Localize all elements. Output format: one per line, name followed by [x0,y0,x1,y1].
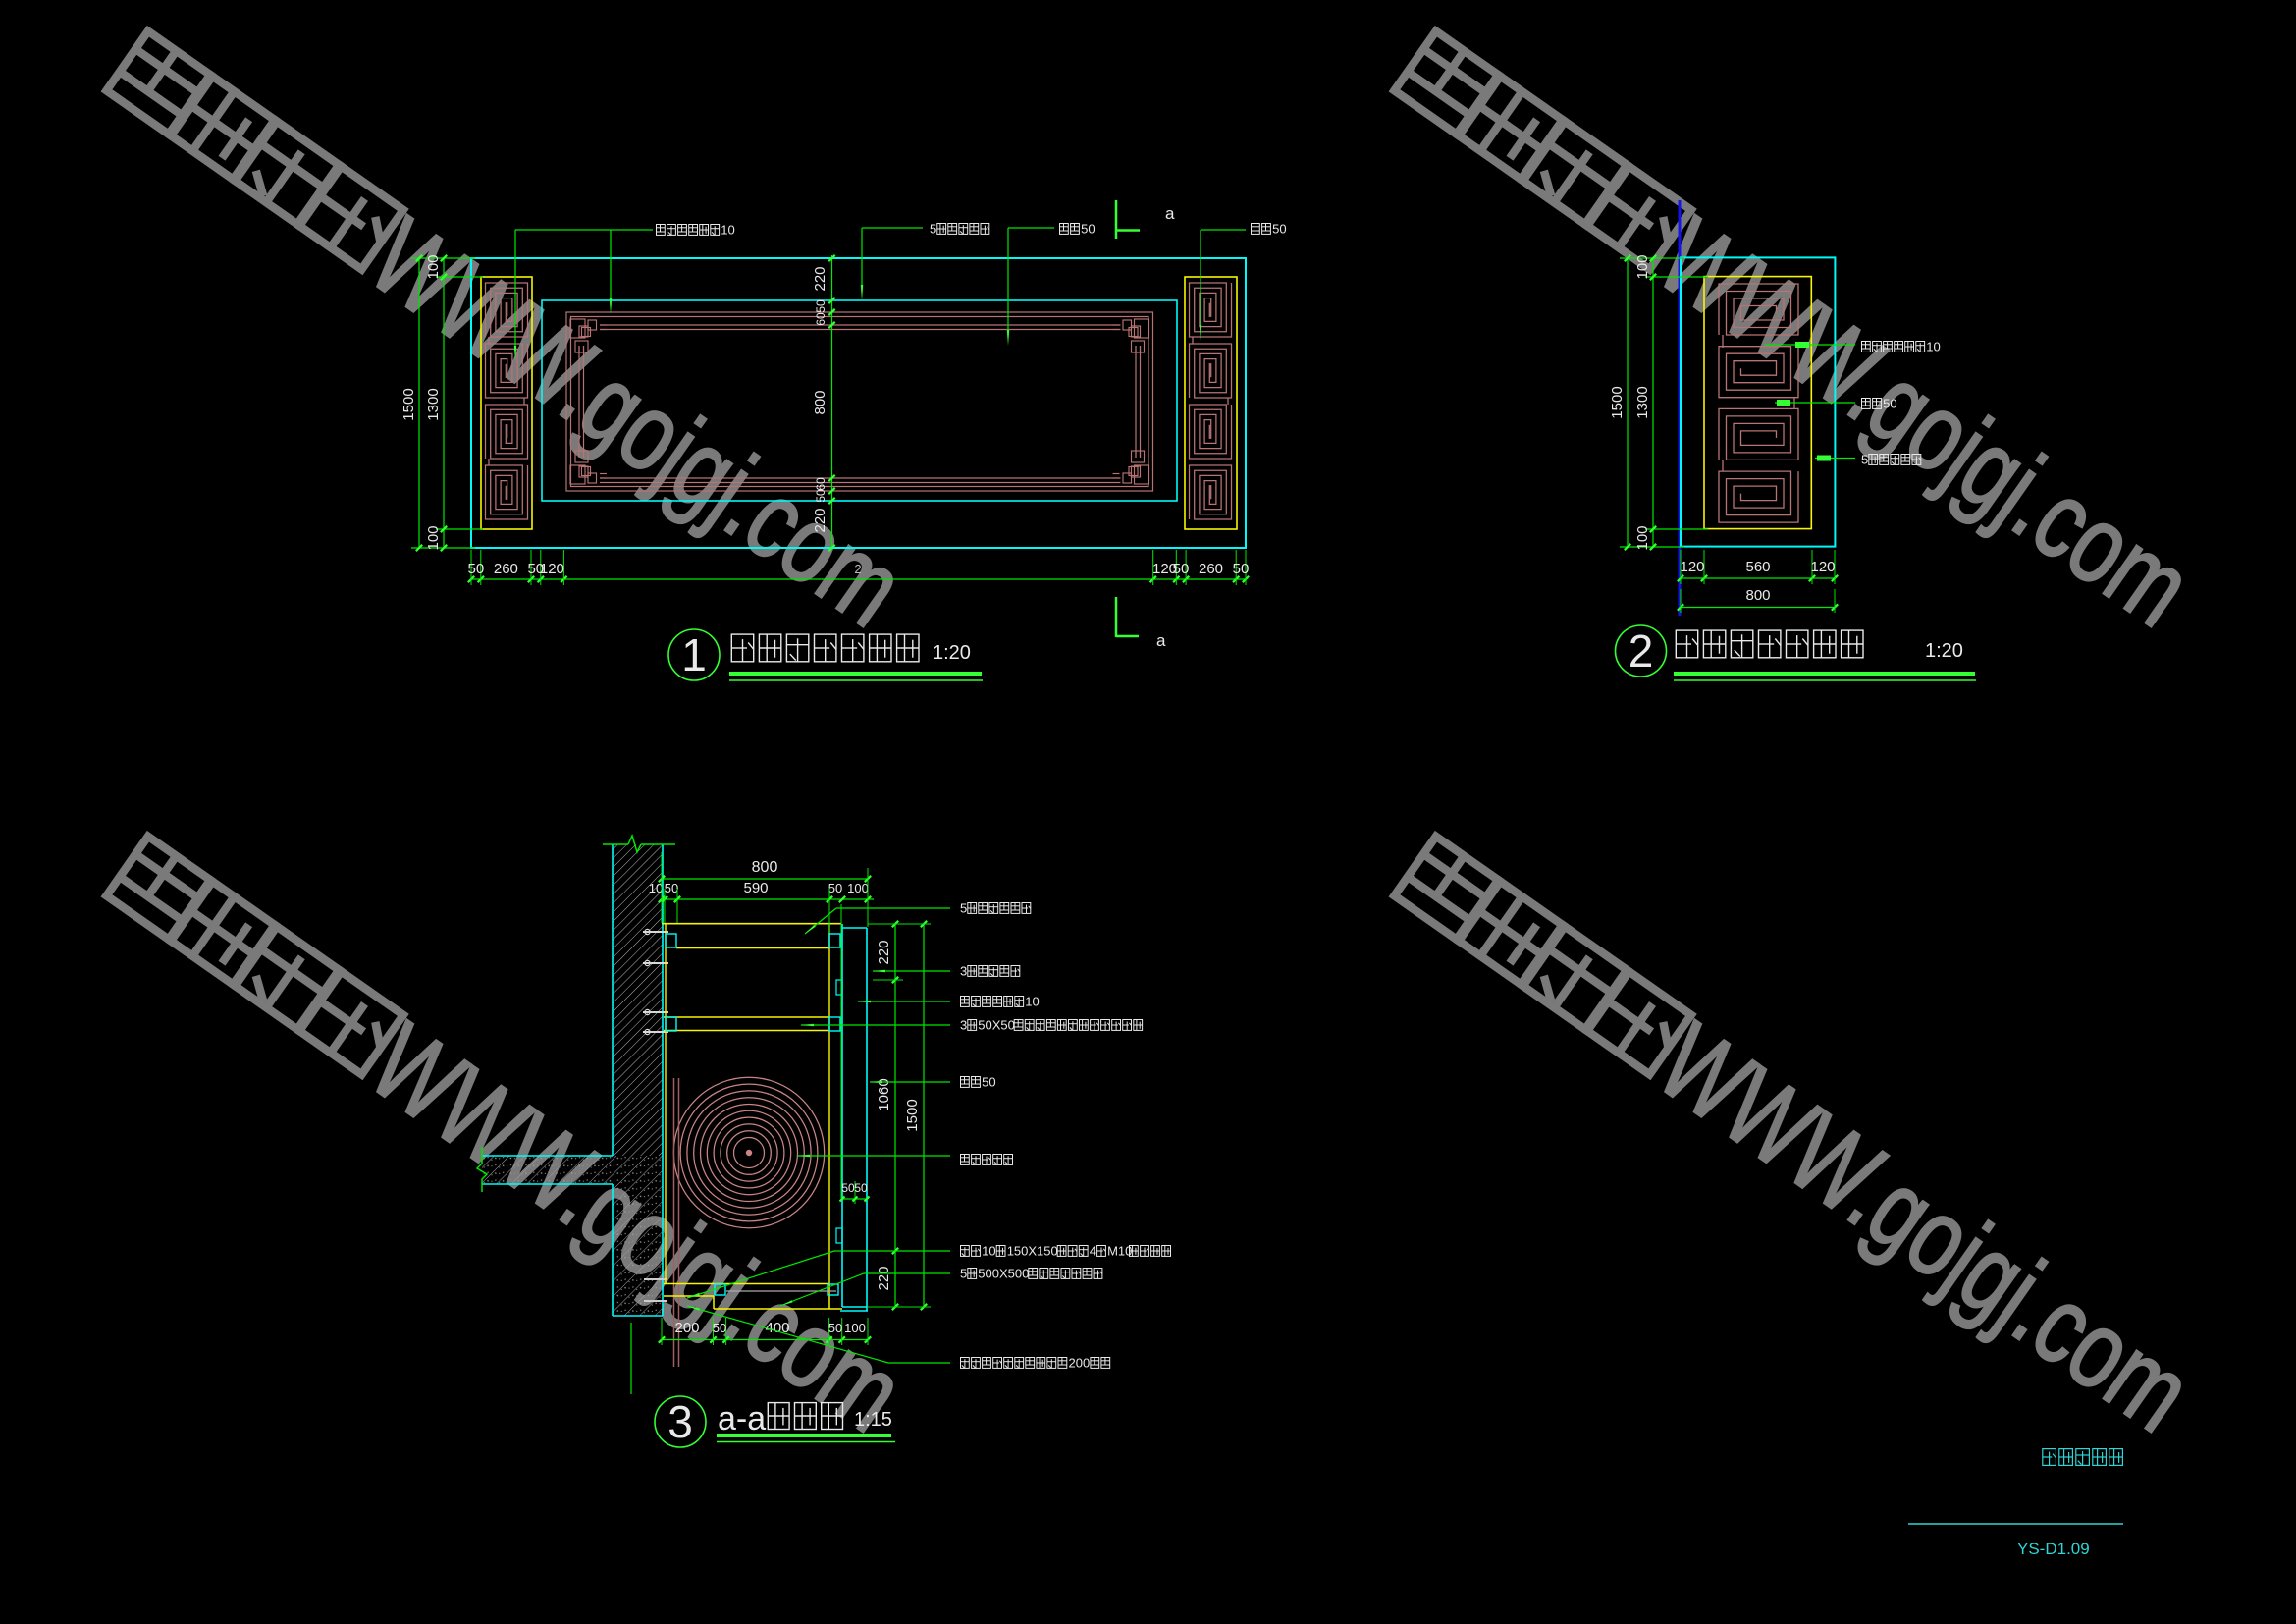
svg-text:100: 100 [844,1321,866,1335]
svg-text:50: 50 [468,561,485,577]
svg-text:10: 10 [982,1244,995,1259]
svg-text:3: 3 [667,1396,693,1447]
svg-text:1: 1 [681,629,707,680]
svg-text:50: 50 [1883,397,1896,411]
svg-text:800: 800 [1745,587,1770,604]
svg-text:1:15: 1:15 [854,1409,892,1431]
svg-text:1500: 1500 [904,1099,921,1131]
svg-text:50: 50 [665,881,678,895]
svg-text:50: 50 [1272,222,1286,237]
svg-text:a: a [1165,204,1175,223]
svg-text:120: 120 [1810,559,1835,575]
svg-text:50X50: 50X50 [978,1018,1015,1033]
svg-text:100: 100 [425,525,442,550]
svg-text:50: 50 [982,1075,995,1090]
svg-text:120: 120 [540,561,564,577]
svg-text:10: 10 [1025,995,1039,1009]
svg-text:5: 5 [960,1267,967,1281]
svg-text:120: 120 [1680,559,1704,575]
svg-text:50: 50 [841,1181,855,1195]
svg-text:50: 50 [854,1181,868,1195]
svg-text:50: 50 [1233,561,1250,577]
svg-text:500X500: 500X500 [978,1267,1029,1281]
svg-text:220: 220 [876,1266,892,1290]
svg-text:5: 5 [930,222,936,237]
svg-text:60: 60 [814,312,828,326]
svg-text:YS-D1.09: YS-D1.09 [2017,1540,2090,1558]
svg-text:1300: 1300 [425,388,442,420]
svg-text:M10: M10 [1107,1244,1132,1259]
svg-text:100: 100 [1634,254,1651,279]
svg-text:100: 100 [425,254,442,279]
svg-text:2: 2 [854,562,861,576]
svg-text:50: 50 [814,489,828,503]
svg-text:10: 10 [649,881,663,895]
svg-text:1500: 1500 [1609,386,1626,418]
svg-text:800: 800 [752,859,778,876]
svg-text:1500: 1500 [400,388,417,420]
svg-text:50: 50 [1081,222,1095,237]
svg-text:50: 50 [713,1321,726,1335]
svg-text:150X150: 150X150 [1007,1244,1058,1259]
svg-text:260: 260 [1199,561,1223,577]
svg-text:10: 10 [721,223,734,238]
svg-text:a: a [1156,631,1166,650]
svg-text:1:20: 1:20 [933,642,971,664]
svg-text:a-a: a-a [718,1400,766,1437]
svg-text:800: 800 [812,390,828,414]
svg-text:50: 50 [814,299,828,313]
svg-text:220: 220 [812,266,828,291]
svg-text:1:20: 1:20 [1925,640,1963,662]
svg-text:2: 2 [1629,625,1654,677]
svg-text:5: 5 [1861,453,1868,467]
svg-text:4: 4 [1090,1244,1096,1259]
svg-text:3: 3 [960,1018,967,1033]
svg-text:200: 200 [1069,1356,1091,1371]
svg-text:220: 220 [876,940,892,964]
svg-text:50: 50 [828,1321,842,1335]
svg-text:100: 100 [1634,525,1651,550]
svg-text:50: 50 [828,881,842,895]
svg-text:1300: 1300 [1634,386,1651,418]
svg-text:220: 220 [812,508,828,532]
svg-text:3: 3 [960,964,967,979]
svg-text:560: 560 [1745,559,1770,575]
svg-text:5: 5 [960,901,967,916]
svg-text:1060: 1060 [876,1078,892,1110]
svg-text:260: 260 [494,561,518,577]
svg-text:590: 590 [743,880,768,896]
svg-text:60: 60 [814,477,828,491]
svg-text:10: 10 [1926,340,1940,354]
svg-text:100: 100 [847,881,869,895]
svg-text:200: 200 [674,1320,699,1336]
svg-text:50: 50 [1173,561,1190,577]
